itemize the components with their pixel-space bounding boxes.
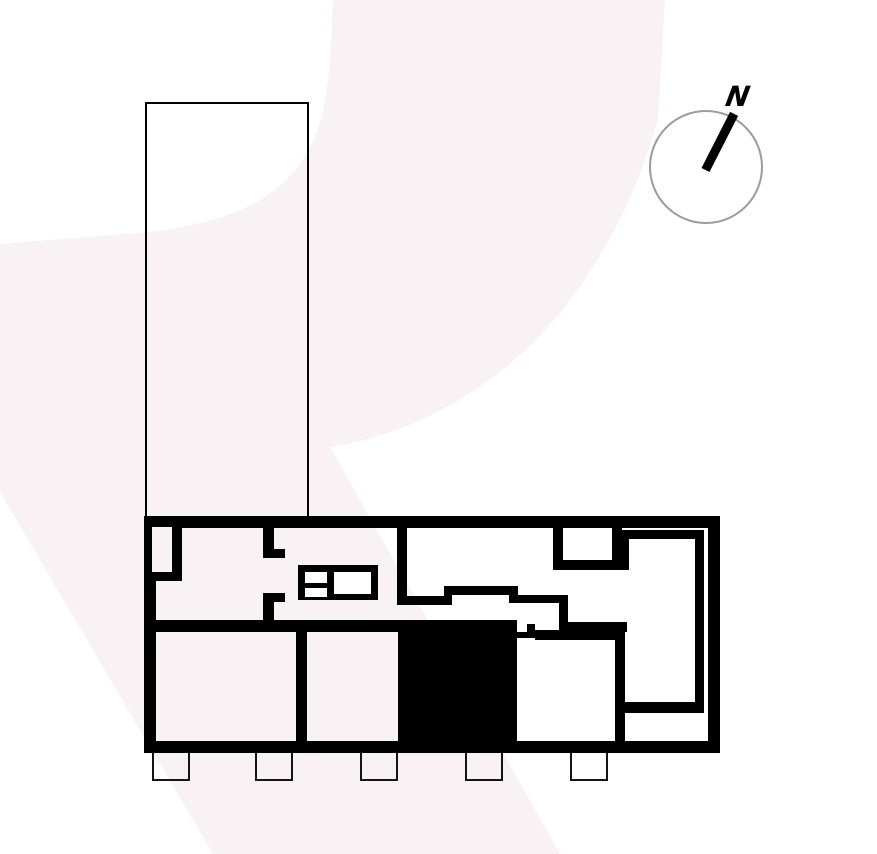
fixture-cell [334, 572, 371, 594]
wall-segment [444, 586, 518, 595]
wall-segment [559, 595, 568, 625]
wall-segment [144, 516, 720, 528]
balcony-tab [570, 753, 608, 781]
wall-segment [296, 632, 307, 741]
wall-segment [618, 530, 629, 570]
fixture-cell [305, 588, 327, 597]
wall-segment [535, 630, 617, 640]
wall-segment [397, 596, 452, 605]
closet-niche [150, 527, 172, 572]
balcony-tab [360, 753, 398, 781]
wall-segment [618, 530, 704, 539]
site-plan-canvas: N [0, 0, 877, 854]
wall-segment [615, 622, 625, 742]
wall-segment [708, 516, 720, 753]
balcony-tab [255, 753, 293, 781]
wall-segment [517, 632, 535, 638]
wall-segment [263, 593, 285, 602]
highlighted-unit[interactable] [398, 624, 517, 741]
wall-segment [263, 549, 285, 558]
balcony-tab [152, 753, 190, 781]
wall-segment [263, 528, 274, 549]
wall-segment [618, 702, 704, 713]
wall-segment [144, 741, 720, 753]
wall-segment [150, 571, 182, 581]
balcony-tab [465, 753, 503, 781]
fixture-cell [305, 572, 327, 583]
compass: N [649, 110, 763, 224]
wall-segment [397, 516, 407, 605]
wall-segment [695, 530, 704, 713]
